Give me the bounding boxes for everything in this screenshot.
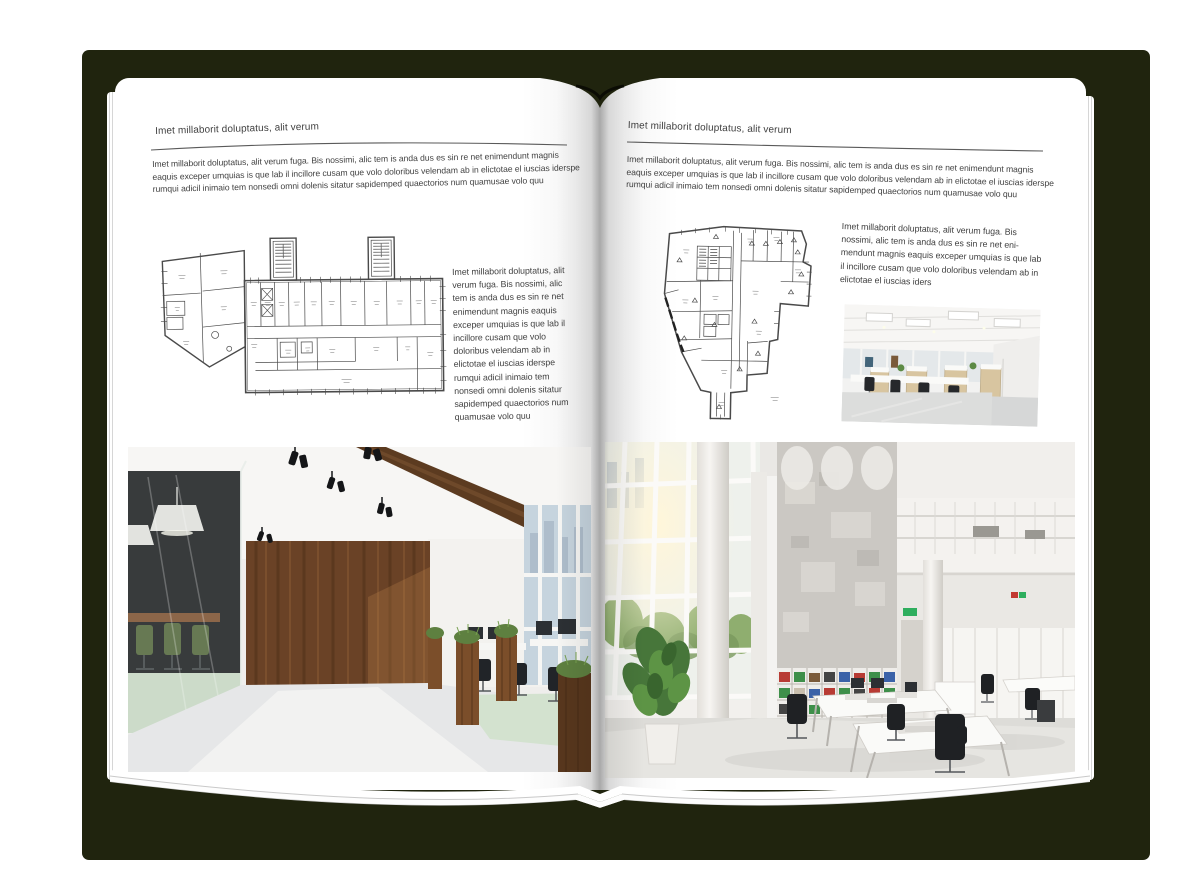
photo-office-workstations-small [841,304,1040,426]
floor-plan-left [158,234,448,417]
right-page-header-rule [627,139,1043,153]
left-page-side-text: Imet millaborit doluptatus, alit verum f… [452,264,573,424]
photo-office-bright-atrium [605,442,1075,778]
floor-plan-right [650,219,843,424]
photo-office-dark-interior [128,447,591,772]
right-page-side-text: Imet millaborit doluptatus, alit verum f… [840,220,1048,293]
book-bottom-curl [110,768,1090,820]
book-top-dip [540,78,660,114]
book-mockup-scene: Imet millaborit doluptatus, alit verum I… [0,0,1200,891]
